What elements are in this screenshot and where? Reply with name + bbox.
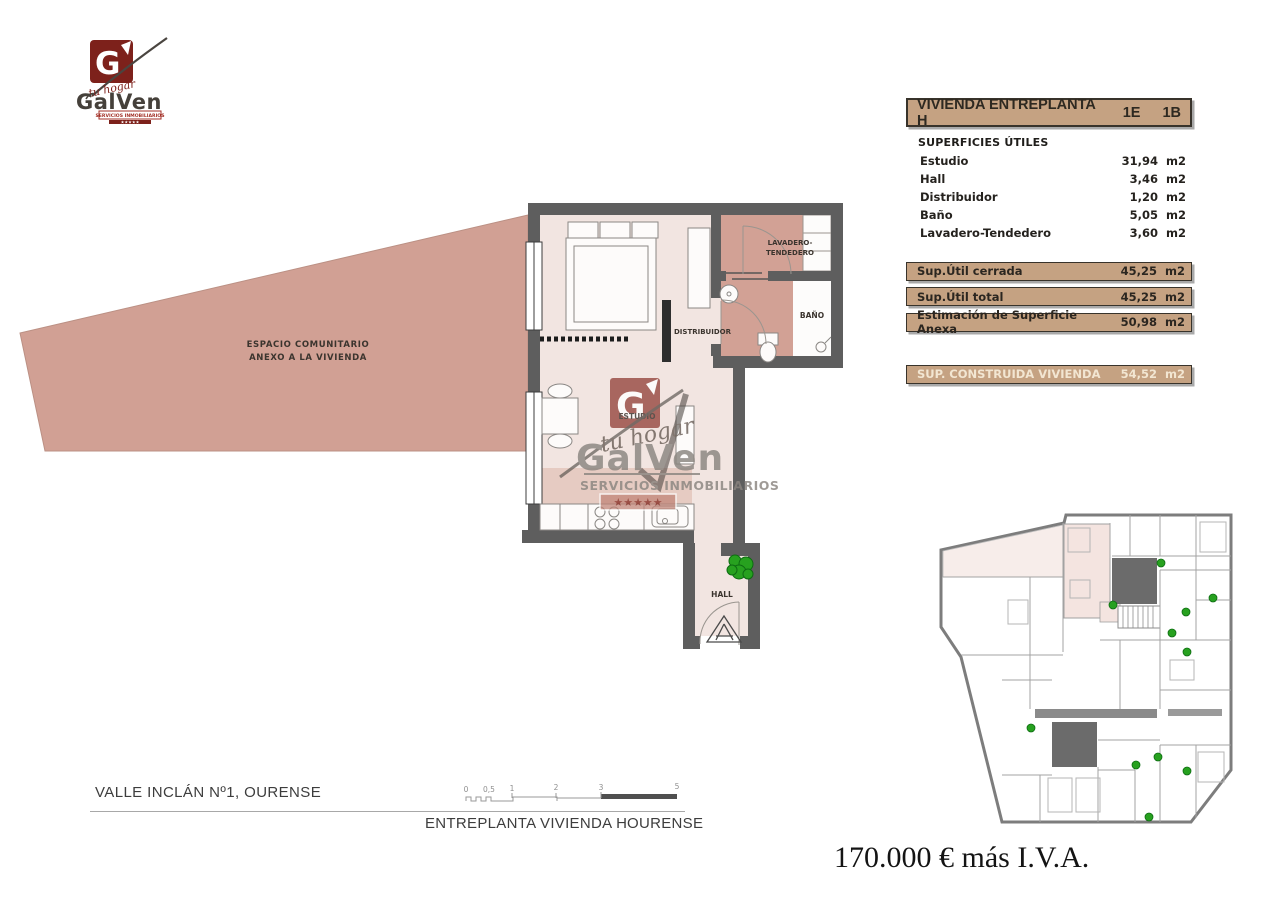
- room-row: Baño 5,05 m2: [906, 206, 1192, 224]
- lavadero-label-line2: TENDEDERO: [766, 249, 814, 257]
- hall-label: HALL: [711, 590, 733, 599]
- city-text: OURENSE: [627, 815, 703, 832]
- watermark-stars: ★★★★★: [613, 496, 662, 509]
- address-text: VALLE INCLÁN Nº1, OURENSE: [95, 784, 321, 801]
- total-unit: m2: [1157, 264, 1185, 278]
- watermark-brand: GalVen: [576, 438, 724, 479]
- logo-subtitle: SERVICIOS INMOBILIARIOS: [95, 113, 164, 119]
- watermark-subtitle: SERVICIOS INMOBILIARIOS: [580, 478, 779, 493]
- room-label: Lavadero-Tendedero: [920, 226, 1112, 240]
- built-label: SUP. CONSTRUIDA VIVIENDA: [917, 367, 1111, 381]
- room-unit: m2: [1158, 208, 1186, 222]
- room-label: Distribuidor: [920, 190, 1112, 204]
- scale-tick: 3: [599, 783, 604, 792]
- building-overview: [941, 515, 1231, 822]
- room-unit: m2: [1158, 226, 1186, 240]
- room-row: Distribuidor 1,20 m2: [906, 188, 1192, 206]
- overview-communal: [943, 525, 1063, 577]
- built-value: 54,52: [1111, 367, 1157, 381]
- total-value: 45,25: [1111, 290, 1157, 304]
- price-text: 170.000 € más I.V.A.: [834, 841, 1089, 875]
- total-value: 50,98: [1111, 315, 1157, 329]
- overview-core-bottom: [1052, 722, 1097, 767]
- scale-tick: 2: [554, 783, 559, 792]
- total-unit: m2: [1157, 290, 1185, 304]
- communal-area: ESPACIO COMUNITARIO ANEXO A LA VIVIENDA: [20, 215, 528, 451]
- panel-title: VIVIENDA ENTREPLANTA H: [917, 97, 1101, 129]
- scale-tick: 0,5: [483, 785, 495, 794]
- room-unit: m2: [1158, 190, 1186, 204]
- room-row: Hall 3,46 m2: [906, 170, 1192, 188]
- room-row: Estudio 31,94 m2: [906, 152, 1192, 170]
- surface-data-panel: VIVIENDA ENTREPLANTA H 1E 1B SUPERFICIES…: [906, 98, 1192, 384]
- lavadero-label-line1: LAVADERO-: [768, 239, 813, 247]
- room-value: 3,46: [1112, 172, 1158, 186]
- room-label: Estudio: [920, 154, 1112, 168]
- built-surface-bar: SUP. CONSTRUIDA VIVIENDA 54,52 m2: [906, 365, 1192, 384]
- total-value: 45,25: [1111, 264, 1157, 278]
- total-bar-anexa: Estimación de Superficie Anexa 50,98 m2: [906, 313, 1192, 332]
- plan-title-text: ENTREPLANTA VIVIENDA H: [425, 815, 627, 832]
- unit-code-b: 1B: [1162, 105, 1181, 121]
- total-label: Sup.Útil cerrada: [917, 264, 1111, 278]
- scale-tick: 0: [464, 785, 469, 794]
- room-row: Lavadero-Tendedero 3,60 m2: [906, 224, 1192, 242]
- flyer-page: ESPACIO COMUNITARIO ANEXO A LA VIVIENDA: [0, 0, 1280, 905]
- panel-header: VIVIENDA ENTREPLANTA H 1E 1B: [906, 98, 1192, 127]
- room-value: 1,20: [1112, 190, 1158, 204]
- distribuidor-label: DISTRIBUIDOR: [674, 328, 732, 336]
- section-title: SUPERFICIES ÚTILES: [918, 136, 1192, 149]
- room-unit: m2: [1158, 172, 1186, 186]
- overview-stairs: [1118, 606, 1160, 628]
- logo-brand: GalVen: [76, 90, 162, 114]
- scale-tick: 1: [510, 784, 515, 793]
- room-value: 3,60: [1112, 226, 1158, 240]
- room-value: 5,05: [1112, 208, 1158, 222]
- total-bar-cerrada: Sup.Útil cerrada 45,25 m2: [906, 262, 1192, 281]
- room-value: 31,94: [1112, 154, 1158, 168]
- overview-core-top: [1112, 558, 1157, 604]
- bano-label: BAÑO: [800, 311, 824, 320]
- total-label: Sup.Útil total: [917, 290, 1111, 304]
- room-unit: m2: [1158, 154, 1186, 168]
- room-label: Hall: [920, 172, 1112, 186]
- total-bar-total: Sup.Útil total 45,25 m2: [906, 287, 1192, 306]
- total-unit: m2: [1157, 315, 1185, 329]
- logo-stars: ★★★★★: [121, 120, 140, 124]
- communal-label-line2: ANEXO A LA VIVIENDA: [249, 353, 367, 363]
- galven-logo: G tu hogar GalVen SERVICIOS INMOBILIARIO…: [72, 12, 188, 124]
- unit-code-e: 1E: [1123, 105, 1141, 121]
- galven-logo-graphic: G tu hogar GalVen SERVICIOS INMOBILIARIO…: [72, 12, 188, 124]
- total-label: Estimación de Superficie Anexa: [917, 308, 1111, 336]
- scale-bar: 0 0,5 1 2 3 5: [464, 782, 680, 801]
- footer-divider: [90, 811, 685, 812]
- communal-label-line1: ESPACIO COMUNITARIO: [247, 340, 370, 350]
- scale-tick: 5: [675, 782, 680, 791]
- built-unit: m2: [1157, 367, 1185, 381]
- room-label: Baño: [920, 208, 1112, 222]
